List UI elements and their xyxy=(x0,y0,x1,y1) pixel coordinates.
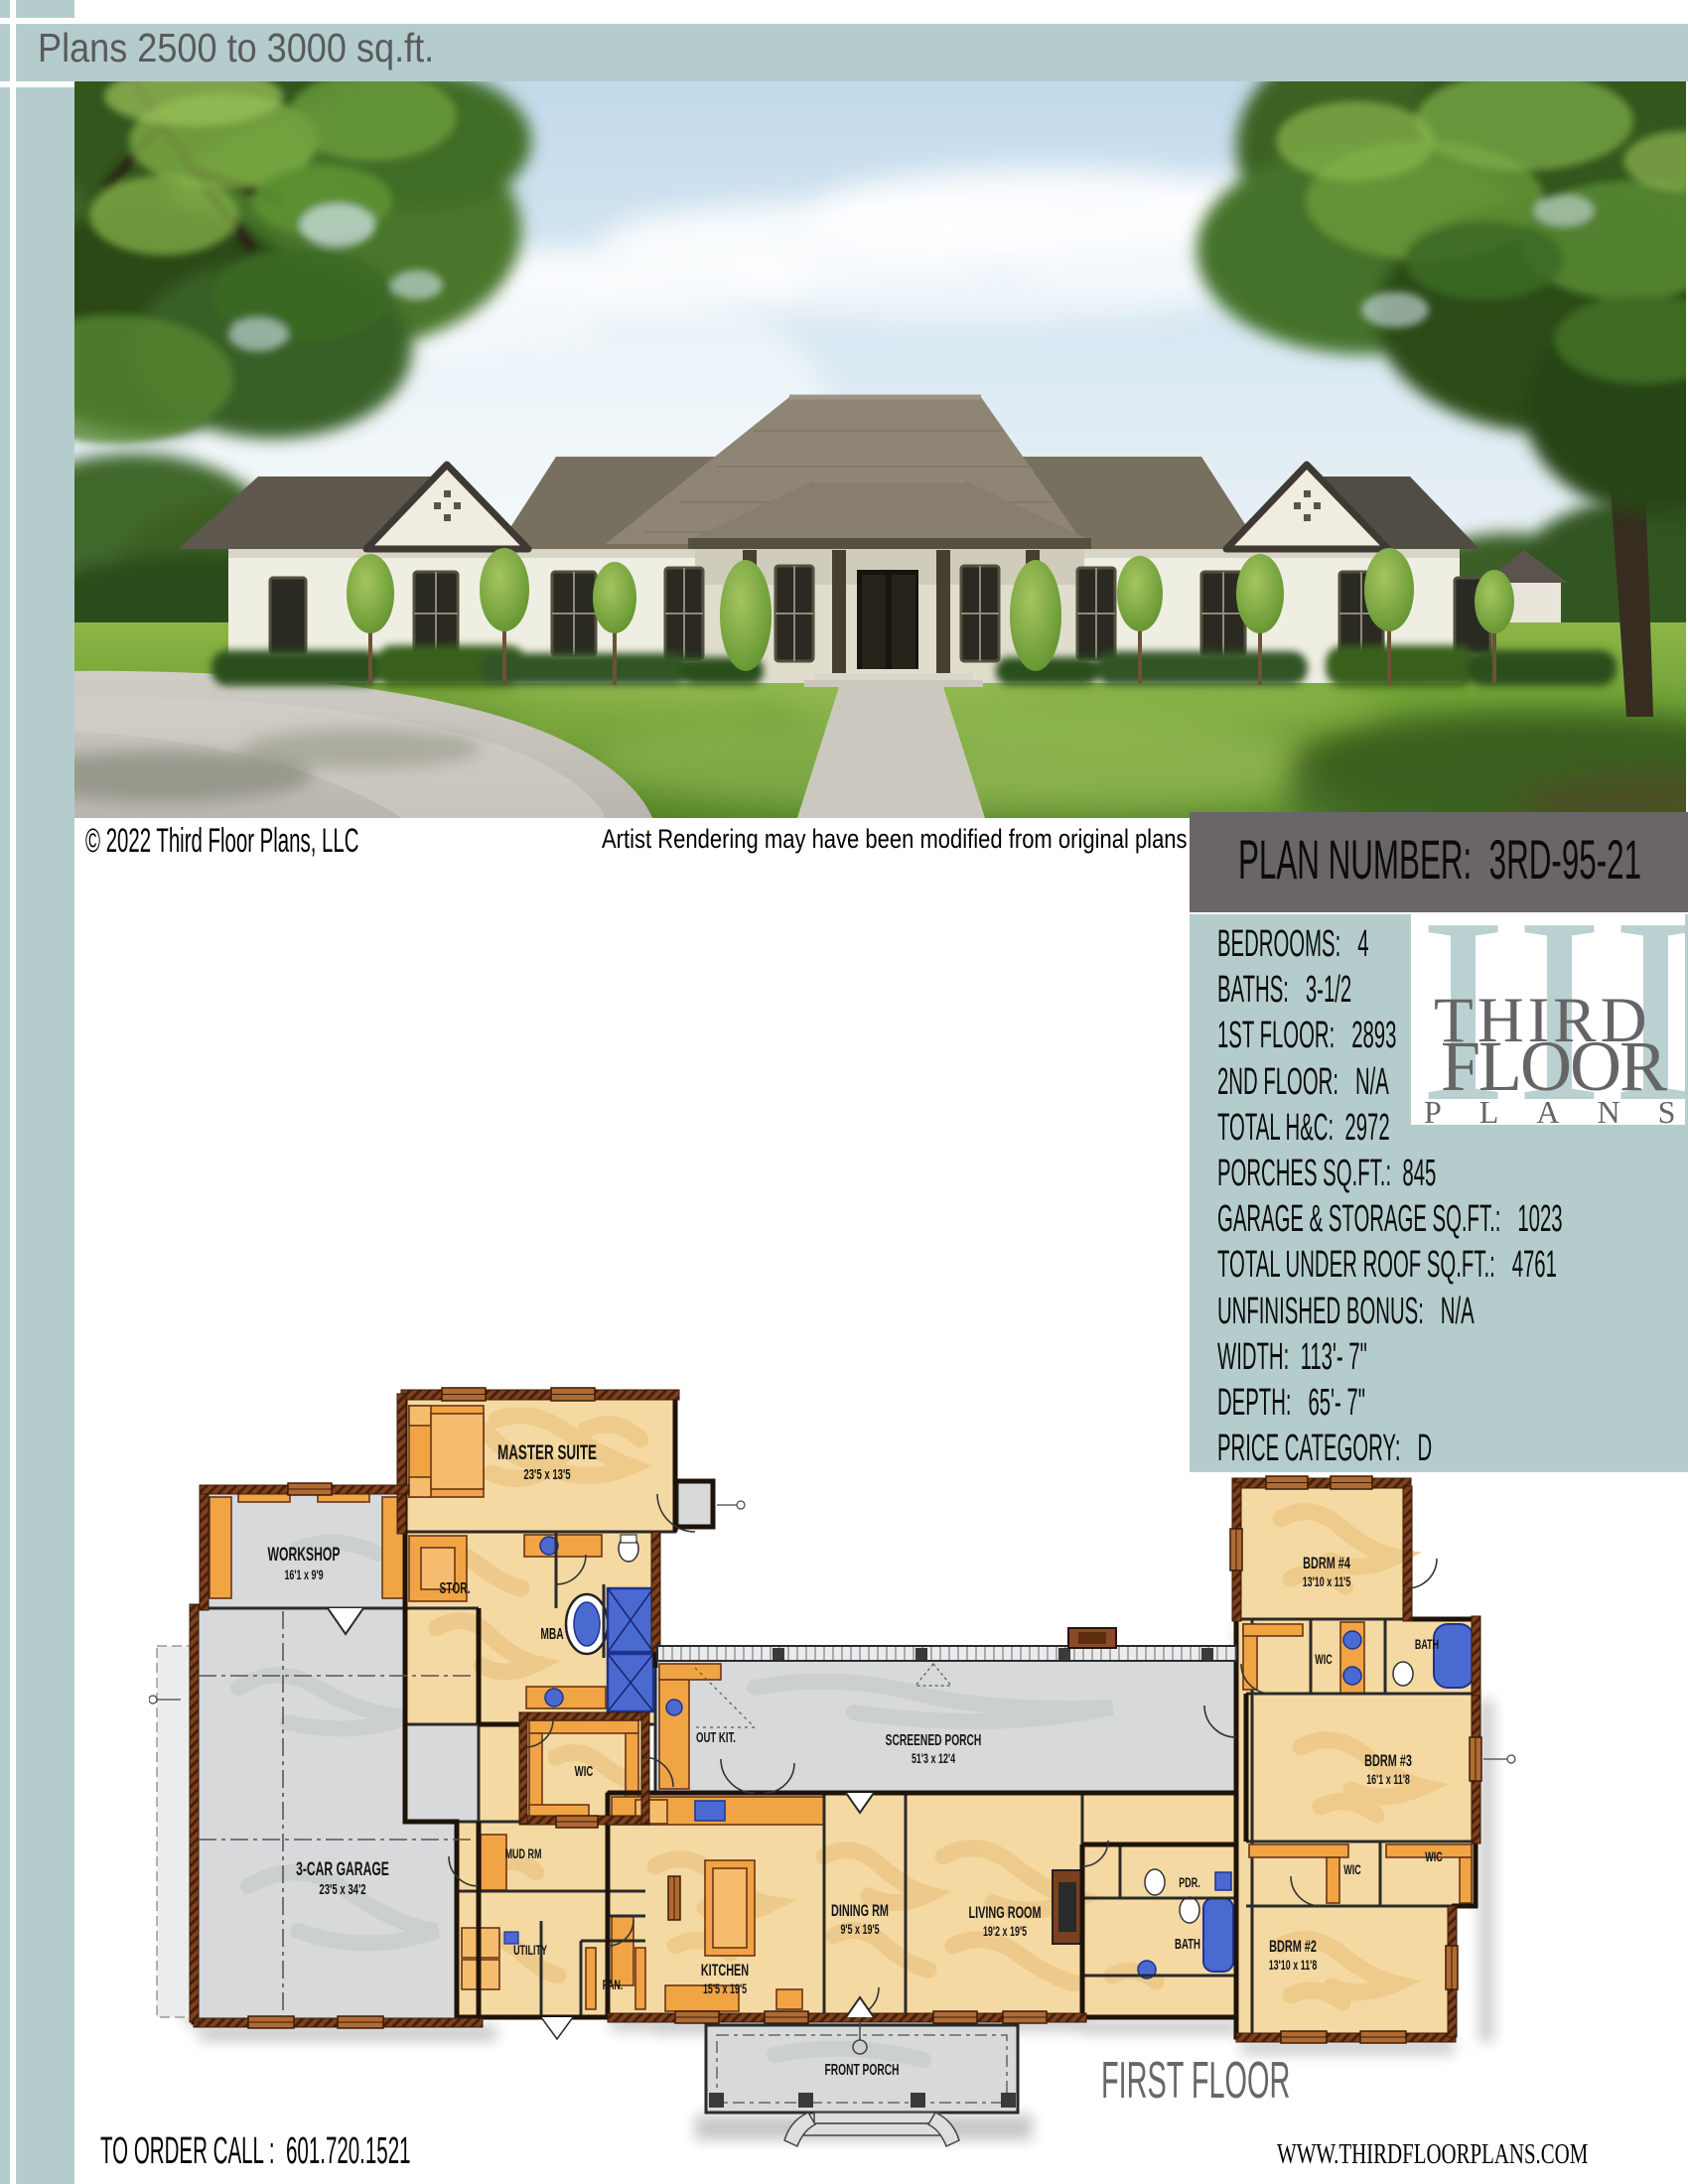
svg-text:WIC: WIC xyxy=(1425,1849,1443,1864)
svg-text:16'1 x 9'9: 16'1 x 9'9 xyxy=(284,1568,323,1582)
svg-text:BDRM #4: BDRM #4 xyxy=(1303,1555,1350,1573)
svg-text:UTILITY: UTILITY xyxy=(513,1943,547,1958)
svg-text:KITCHEN: KITCHEN xyxy=(701,1962,749,1980)
svg-text:PAN.: PAN. xyxy=(603,1978,624,1992)
svg-text:DINING RM: DINING RM xyxy=(831,1902,889,1921)
svg-text:WIC: WIC xyxy=(1343,1862,1361,1877)
svg-text:BATH: BATH xyxy=(1415,1637,1439,1652)
svg-text:BDRM #2: BDRM #2 xyxy=(1269,1938,1317,1957)
svg-text:FRONT PORCH: FRONT PORCH xyxy=(824,2061,899,2079)
svg-text:LIVING ROOM: LIVING ROOM xyxy=(968,1904,1041,1923)
svg-text:15'5 x 19'5: 15'5 x 19'5 xyxy=(703,1981,747,1996)
svg-text:PDR.: PDR. xyxy=(1179,1875,1199,1890)
svg-text:13'10 x 11'5: 13'10 x 11'5 xyxy=(1303,1574,1351,1589)
svg-text:MBA: MBA xyxy=(540,1625,564,1643)
svg-text:BATH: BATH xyxy=(1175,1936,1200,1953)
svg-text:WIC: WIC xyxy=(575,1763,594,1780)
svg-text:3-CAR GARAGE: 3-CAR GARAGE xyxy=(296,1860,389,1880)
svg-text:23'5 x 34'2: 23'5 x 34'2 xyxy=(319,1881,365,1898)
svg-text:BDRM #3: BDRM #3 xyxy=(1364,1752,1412,1771)
svg-text:23'5 x 13'5: 23'5 x 13'5 xyxy=(523,1466,570,1483)
svg-text:SCREENED PORCH: SCREENED PORCH xyxy=(886,1731,982,1749)
svg-text:OUT KIT.: OUT KIT. xyxy=(696,1729,736,1746)
svg-text:MUD RM: MUD RM xyxy=(505,1846,542,1861)
svg-text:13'10 x 11'8: 13'10 x 11'8 xyxy=(1269,1958,1318,1973)
svg-text:9'5 x 19'5: 9'5 x 19'5 xyxy=(840,1922,879,1937)
svg-text:WORKSHOP: WORKSHOP xyxy=(268,1546,341,1566)
svg-text:STOR.: STOR. xyxy=(439,1579,470,1597)
svg-text:19'2 x 19'5: 19'2 x 19'5 xyxy=(983,1924,1027,1939)
svg-text:MASTER SUITE: MASTER SUITE xyxy=(497,1440,597,1464)
svg-text:WIC: WIC xyxy=(1315,1652,1333,1667)
svg-text:51'3 x 12'4: 51'3 x 12'4 xyxy=(912,1751,955,1766)
svg-text:16'1 x 11'8: 16'1 x 11'8 xyxy=(1366,1772,1410,1787)
